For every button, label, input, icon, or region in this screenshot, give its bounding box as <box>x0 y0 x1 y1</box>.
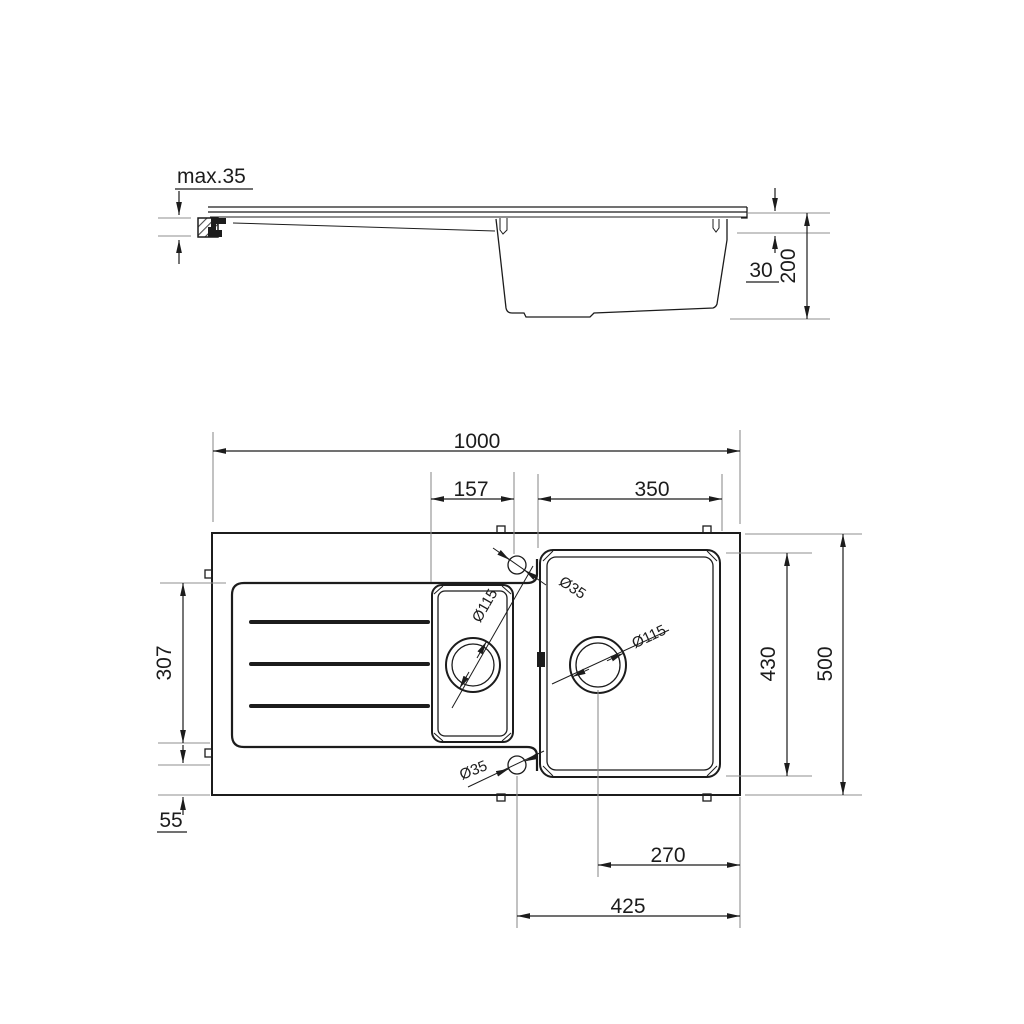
dim-drain-to-edge: 270 <box>598 690 740 928</box>
dim-rim-mount-depth-label: 30 <box>749 259 772 282</box>
dim-tap-edge-offset-label: 55 <box>159 809 182 832</box>
dim-drain-to-edge-label: 270 <box>650 844 685 867</box>
dim-tap-to-edge: 425 <box>517 776 740 928</box>
dim-drainer-length: 307 <box>153 583 226 743</box>
technical-drawing-page: max.35 30 200 <box>0 0 1024 1024</box>
dim-main-bowl-length-label: 430 <box>757 646 780 681</box>
small-bowl <box>432 585 513 742</box>
dim-main-bowl-width-label: 350 <box>634 478 669 501</box>
small-bowl-drain-label: Ø115 <box>469 586 502 625</box>
callout-main-bowl-drain: Ø115 <box>552 622 669 684</box>
side-view: max.35 30 200 <box>158 165 830 319</box>
dim-small-bowl-to-tap: 157 <box>431 472 514 582</box>
tap-hole-bottom <box>508 756 526 774</box>
small-bowl-drain <box>446 638 500 692</box>
dim-main-bowl-width: 350 <box>538 474 722 548</box>
tap-hole-top-label: Ø35 <box>556 573 589 603</box>
dim-overall-width-label: 1000 <box>454 430 501 453</box>
plan-view: Ø35 Ø35 Ø115 Ø115 1000 <box>153 430 862 928</box>
sink-technical-drawing: max.35 30 200 <box>0 0 1024 1024</box>
callout-tap-hole-bottom: Ø35 <box>457 751 544 787</box>
dim-tap-to-edge-label: 425 <box>610 895 645 918</box>
main-bowl-drain-label: Ø115 <box>629 622 668 652</box>
sink-rim-profile <box>208 207 747 231</box>
dim-countertop-thickness-label: max.35 <box>177 165 246 188</box>
tap-hole-bottom-label: Ø35 <box>457 757 490 783</box>
dim-countertop-thickness: max.35 <box>158 165 253 264</box>
bowl-section-profile <box>496 218 727 317</box>
drainboard-grooves <box>251 622 428 706</box>
dim-bowl-depth-label: 200 <box>777 248 800 283</box>
main-bowl-drain <box>570 637 626 693</box>
drainboard-underside <box>233 223 495 231</box>
overflow-mark <box>537 652 545 667</box>
dim-overall-depth-label: 500 <box>814 646 837 681</box>
mounting-clip-under-rim-right <box>713 219 719 232</box>
dim-main-bowl-length: 430 <box>726 553 812 776</box>
callout-small-bowl-drain: Ø115 <box>452 566 533 708</box>
dim-small-bowl-to-tap-label: 157 <box>453 478 488 501</box>
dim-tap-edge-offset: 55 <box>157 745 210 832</box>
mounting-clip-under-rim-left <box>500 218 507 234</box>
dim-overall-width: 1000 <box>213 430 740 524</box>
dim-drainer-length-label: 307 <box>153 645 176 680</box>
dim-bowl-depth: 200 <box>730 213 830 319</box>
